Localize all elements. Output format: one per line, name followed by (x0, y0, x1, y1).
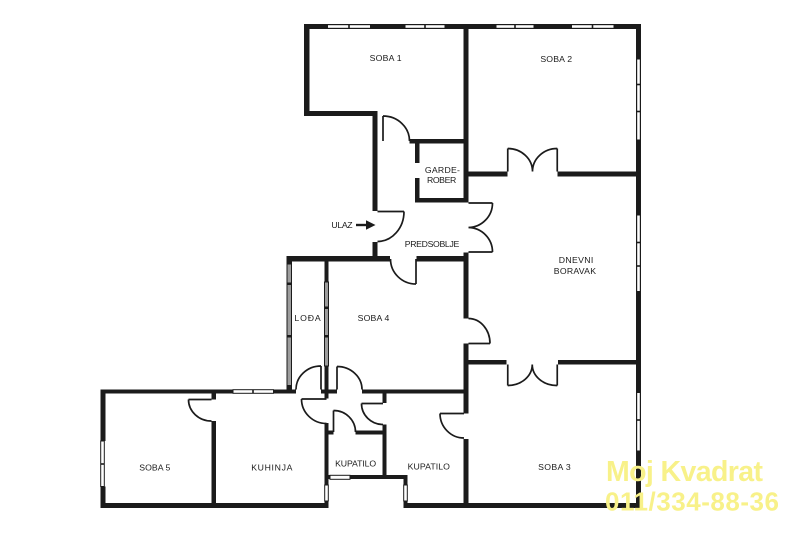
svg-text:LOĐA: LOĐA (294, 313, 321, 323)
svg-text:PREDSOBLJE: PREDSOBLJE (405, 239, 460, 249)
svg-text:KUPATILO: KUPATILO (408, 462, 451, 472)
svg-text:DNEVNI: DNEVNI (559, 255, 594, 265)
svg-text:011/334-88-36: 011/334-88-36 (605, 486, 779, 516)
svg-text:ROBER: ROBER (427, 175, 456, 185)
svg-text:SOBA 3: SOBA 3 (538, 462, 571, 472)
svg-text:BORAVAK: BORAVAK (554, 266, 596, 276)
svg-text:KUPATILO: KUPATILO (335, 458, 376, 468)
svg-text:Moj Kvadrat: Moj Kvadrat (606, 456, 764, 488)
svg-text:SOBA 5: SOBA 5 (139, 463, 170, 473)
svg-text:ULAZ: ULAZ (331, 220, 353, 230)
svg-text:SOBA 2: SOBA 2 (540, 54, 572, 64)
svg-text:KUHINJA: KUHINJA (251, 463, 292, 473)
svg-text:GARDE-: GARDE- (425, 165, 460, 175)
svg-text:SOBA 4: SOBA 4 (358, 313, 390, 323)
svg-text:SOBA 1: SOBA 1 (370, 53, 402, 63)
